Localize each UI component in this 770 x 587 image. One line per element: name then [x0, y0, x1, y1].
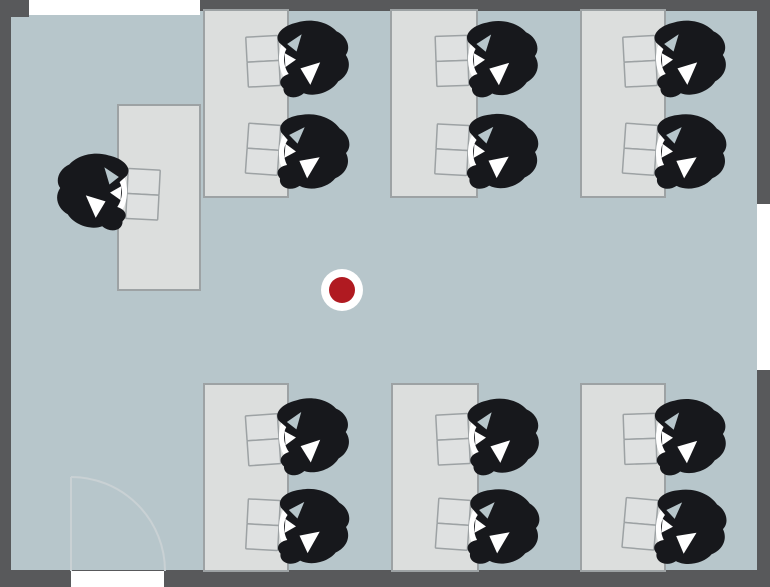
floorplan-canvas	[0, 0, 770, 587]
location-marker-dot	[329, 277, 355, 303]
window-opening-right	[757, 204, 770, 370]
door-opening	[71, 571, 164, 587]
window-opening-top	[29, 0, 200, 15]
wall-left	[0, 0, 11, 587]
floorplan	[0, 0, 770, 587]
wall-top-left-corner	[0, 0, 29, 17]
